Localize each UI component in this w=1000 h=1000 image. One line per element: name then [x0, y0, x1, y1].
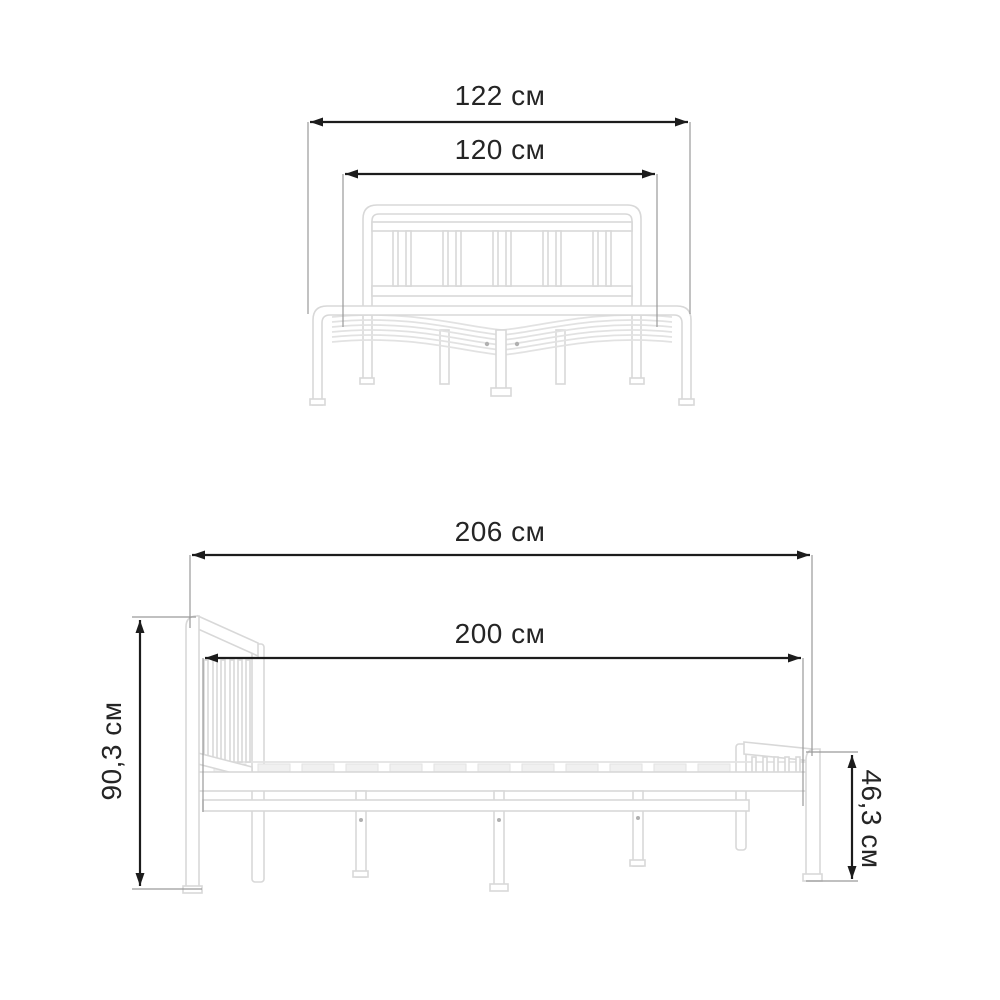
side-leg-foot [630, 860, 645, 866]
side-headboard-top-rail [198, 616, 258, 656]
front-headboard-lower-rail [372, 286, 632, 296]
dim-label-front-overall-width: 122 см [400, 78, 600, 114]
front-view-drawing [310, 205, 694, 405]
front-headboard-upper-rail [372, 222, 632, 231]
screw-dot [515, 342, 519, 346]
dim-label-footboard-height: 46,3 см [853, 719, 889, 919]
side-leg-foot [490, 884, 508, 891]
front-far-leg [556, 330, 565, 384]
front-footboard-foot [310, 399, 325, 405]
side-footboard-near-post [806, 749, 820, 880]
dim-label-headboard-height: 90,3 см [94, 651, 130, 851]
side-headboard-far-post [252, 644, 264, 882]
front-footboard-foot [679, 399, 694, 405]
side-leg-foot [353, 871, 368, 877]
screw-dot [359, 818, 363, 822]
front-far-leg [440, 330, 449, 384]
side-platform-rail [197, 772, 813, 791]
front-headboard-foot [630, 378, 644, 384]
dim-label-side-inner-length: 200 см [400, 616, 600, 652]
side-lower-bar [203, 800, 749, 811]
dim-label-side-overall-length: 206 см [400, 514, 600, 550]
bed-dimensions-diagram: 122 см 120 см 206 см 200 см 90,3 см 46,3… [0, 0, 1000, 1000]
side-headboard-slats [204, 660, 250, 762]
dim-label-front-inner-width: 120 см [400, 132, 600, 168]
front-center-leg [496, 330, 506, 392]
screw-dot [497, 818, 501, 822]
front-center-foot [491, 388, 511, 396]
front-headboard-foot [360, 378, 374, 384]
front-headboard-slats [393, 231, 611, 286]
screw-dot [485, 342, 489, 346]
side-headboard-near-post [186, 616, 199, 892]
screw-dot [636, 816, 640, 820]
side-footboard-foot [803, 874, 822, 881]
side-footboard-far-post [736, 744, 746, 850]
